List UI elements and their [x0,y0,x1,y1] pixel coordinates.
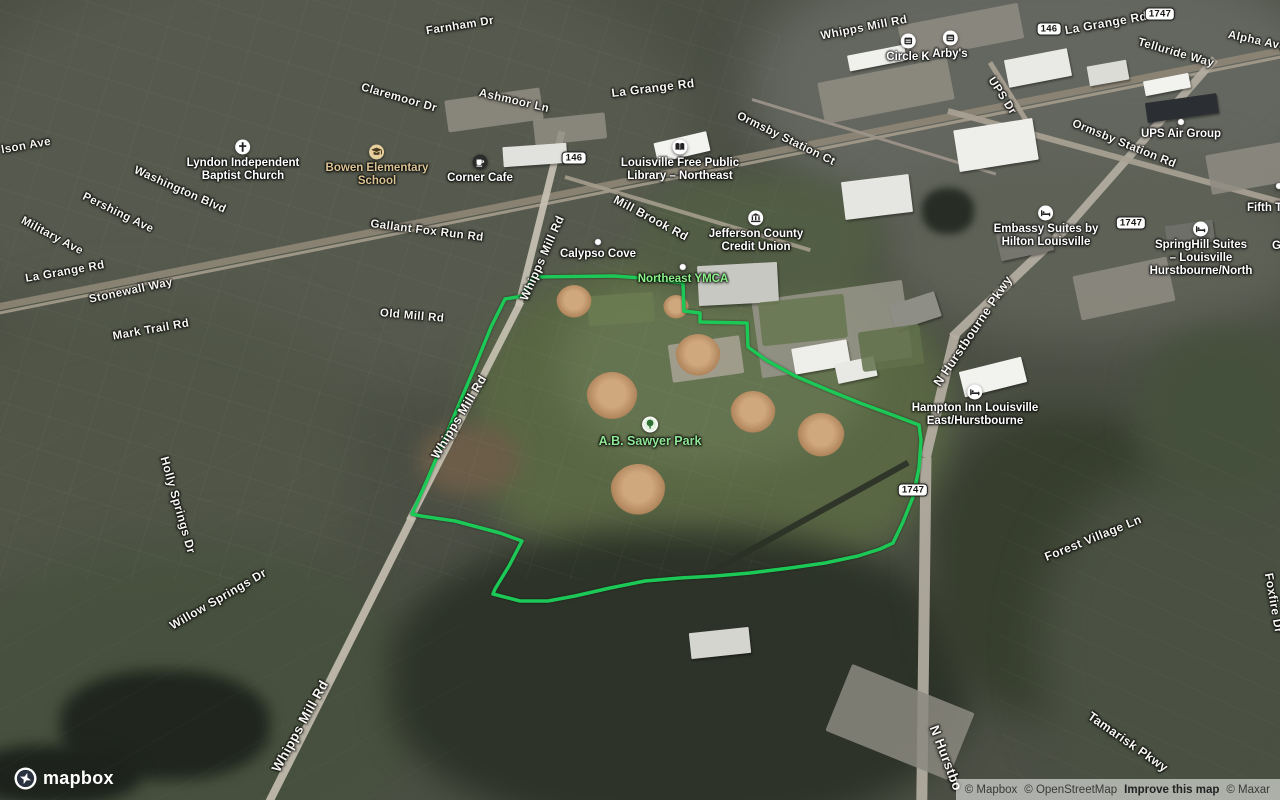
cafe-icon [472,154,488,170]
poi-label: Hampton Inn LouisvilleEast/Hurstbourne [912,402,1039,428]
maxar-attribution-link[interactable]: © Maxar [1226,784,1270,796]
road-label: Forest Village Ln [1042,512,1143,564]
poi-springhill-suites: SpringHill Suites– LouisvilleHurstbourne… [1150,221,1253,278]
dot-icon [1177,118,1185,126]
cross-icon [235,139,251,155]
road-label: Pershing Ave [81,191,156,236]
poi-label: SpringHill Suites– LouisvilleHurstbourne… [1150,239,1253,278]
poi-label: Arby's [932,48,967,61]
bed-icon [967,384,983,400]
tree-icon [642,416,659,433]
highway-shield: 1747 [1145,8,1175,21]
highway-shield: 146 [562,152,587,165]
poi-label: Bowen ElementarySchool [326,162,429,188]
road-label: La Grange Rd [1064,9,1149,37]
poi-label: Calypso Cove [560,248,636,261]
school-icon [369,144,385,160]
osm-attribution-link[interactable]: © OpenStreetMap [1024,784,1117,796]
poi-ups-air-group: UPS Air Group [1141,118,1221,141]
road-label: UPS Dr [986,75,1019,117]
mapbox-logo[interactable]: mapbox [14,767,114,790]
poi-label: Embassy Suites byHilton Louisville [994,223,1099,249]
road-label: Stonewall Way [88,276,174,305]
poi-label: Jefferson CountyCredit Union [709,228,804,254]
mapbox-logo-icon [14,767,37,790]
bed-icon [1193,221,1209,237]
poi-bowen-elementary: Bowen ElementarySchool [326,144,429,188]
highway-shield: 1747 [898,484,928,497]
road-label: Gallant Fox Run Rd [370,218,485,244]
library-icon [672,139,688,155]
poi-hampton-inn: Hampton Inn LouisvilleEast/Hurstbourne [912,384,1039,428]
shop-icon [942,30,958,46]
poi-label: Circle K [886,51,929,64]
mapbox-attribution-link[interactable]: © Mapbox [965,784,1018,796]
poi-label: Lyndon IndependentBaptist Church [187,157,300,183]
poi-lyndon-baptist-church: Lyndon IndependentBaptist Church [187,139,300,183]
road-label: Ashmoor Ln [478,87,551,115]
poi-fifth-third: Fifth Th [1247,200,1280,215]
bank-icon [748,210,764,226]
poi-gr-cut: Gr [1272,238,1280,253]
poi-edge-poi [1275,182,1280,190]
dot-icon [594,238,602,246]
poi-northeast-ymca: Northeast YMCA [638,263,729,286]
mapbox-wordmark: mapbox [43,768,114,789]
road-label: Whipps Mill Rd [428,373,489,462]
road-label: Mill Brook Rd [611,192,690,243]
dot-icon [679,263,687,271]
road-label: Farnham Dr [425,15,495,38]
poi-louisville-library-northeast: Louisville Free PublicLibrary – Northeas… [621,139,739,183]
poi-corner-cafe: Corner Cafe [447,154,513,185]
road-label: La Grange Rd [24,259,105,285]
road-label: Whipps Mill Rd [269,678,332,775]
map-canvas[interactable]: Farnham DrClaremoor DrAshmoor LnLa Grang… [0,0,1280,800]
bed-icon [1038,205,1054,221]
attribution-bar: © Mapbox © OpenStreetMap Improve this ma… [956,779,1280,800]
road-label: Alpha Ave [1227,29,1280,53]
poi-ab-sawyer-park: A.B. Sawyer Park [599,416,702,448]
poi-label: UPS Air Group [1141,128,1221,141]
road-label: Mark Trail Rd [112,317,190,342]
poi-label: A.B. Sawyer Park [599,435,702,448]
road-label: Claremoor Dr [360,81,439,114]
poi-arbys: Arby's [932,30,967,61]
road-label: Ormsby Station Ct [735,110,837,168]
poi-label: Northeast YMCA [638,273,729,286]
poi-label: Corner Cafe [447,172,513,185]
dot-icon [1275,182,1280,190]
poi-calypso-cove: Calypso Cove [560,238,636,261]
road-label: Holly Springs Dr [157,455,198,555]
highway-shield: 1747 [1116,217,1146,230]
poi-embassy-suites: Embassy Suites byHilton Louisville [994,205,1099,249]
poi-label: Gr [1272,240,1280,253]
poi-label: Louisville Free PublicLibrary – Northeas… [621,157,739,183]
poi-jefferson-county-credit-union: Jefferson CountyCredit Union [709,210,804,254]
road-label: Telluride Way [1137,36,1216,69]
poi-label: Fifth Th [1247,202,1280,215]
road-label: Foxfire Dr [1262,572,1280,634]
shop-icon [900,33,916,49]
poi-circle-k: Circle K [886,33,929,64]
road-label: Military Ave [19,215,85,258]
road-label: N Hurstbourne Pkwy [931,273,1015,389]
improve-map-link[interactable]: Improve this map [1124,784,1219,796]
highway-shield: 146 [1037,23,1062,36]
road-label: La Grange Rd [611,76,696,100]
road-label: Old Mill Rd [379,307,444,325]
road-label: Willow Springs Dr [167,566,269,633]
road-label: Tamarisk Pkwy [1085,709,1171,775]
road-label: lson Ave [0,136,52,157]
map-labels-layer: Farnham DrClaremoor DrAshmoor LnLa Grang… [0,0,1280,800]
